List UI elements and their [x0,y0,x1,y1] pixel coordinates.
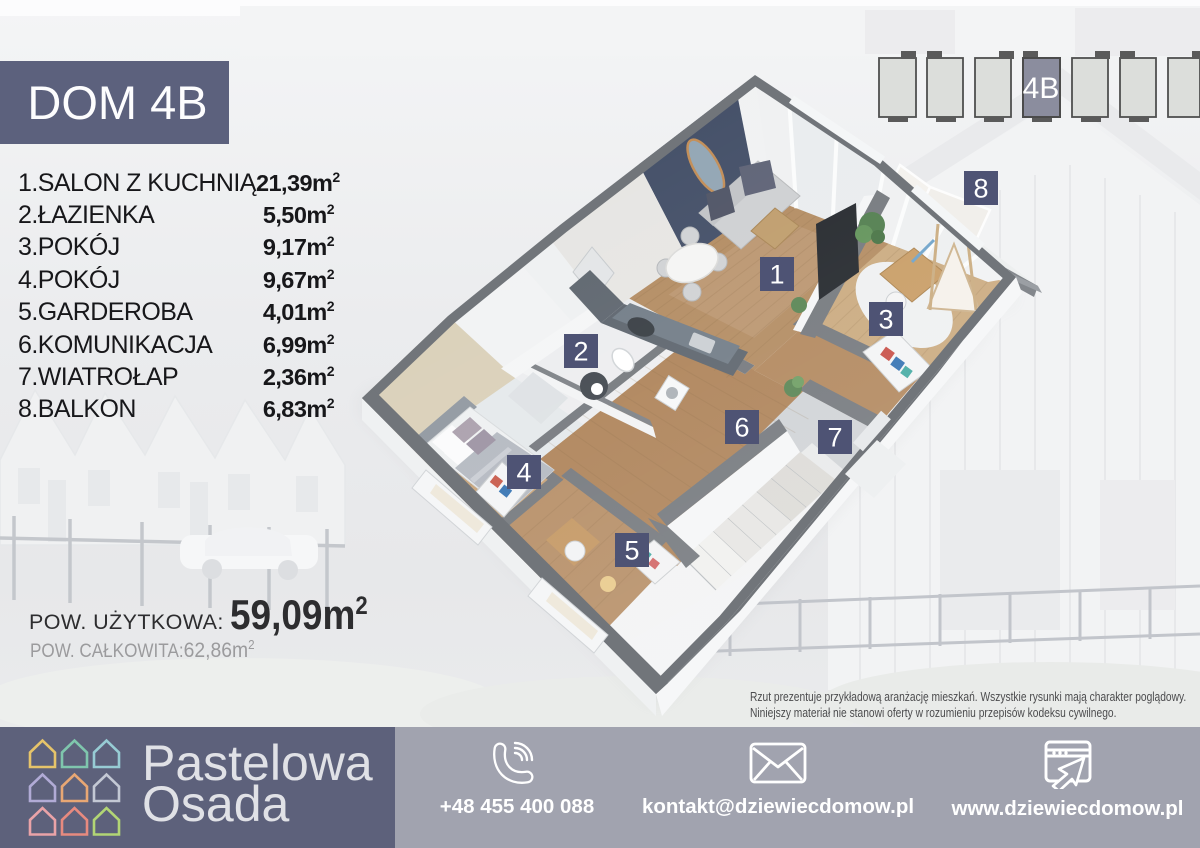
svg-text:7: 7 [827,423,842,453]
svg-text:2: 2 [573,337,588,367]
svg-text:8: 8 [973,174,988,204]
svg-text:4B: 4B [1023,72,1060,105]
svg-text:4: 4 [516,458,531,488]
svg-text:1: 1 [769,260,784,290]
svg-text:6: 6 [734,413,749,443]
svg-text:3: 3 [878,305,893,335]
svg-text:5: 5 [624,536,639,566]
